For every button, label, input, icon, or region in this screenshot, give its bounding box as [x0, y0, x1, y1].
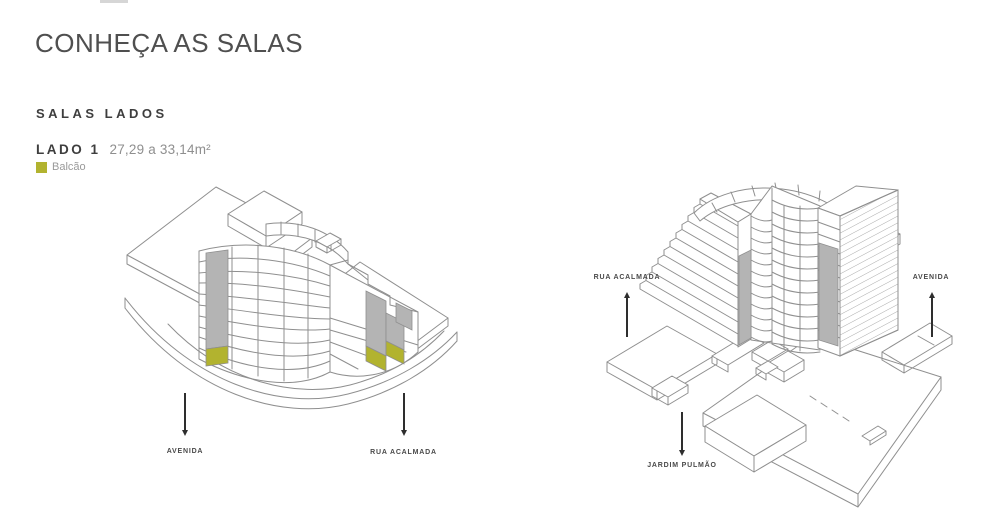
cropped-edge-artifact [100, 0, 128, 3]
street-label-avenida-left: AVENIDA [150, 448, 220, 455]
right-building-linework [607, 183, 952, 507]
unit-area-range: 27,29 a 33,14m² [110, 142, 211, 157]
left-building-linework [125, 187, 457, 409]
left-building-illustration [110, 172, 465, 424]
legend: Balcão [36, 161, 86, 173]
page: CONHEÇA AS SALAS SALAS LADOS LADO 127,29… [0, 0, 1000, 531]
jardim-pulmao-arrow-head [679, 450, 685, 456]
page-title: CONHEÇA AS SALAS [35, 28, 303, 59]
section-subtitle: SALAS LADOS [36, 106, 168, 121]
rua-acalmada-arrow-line-left [403, 393, 405, 430]
balcony-color-swatch [36, 162, 47, 173]
avenida-arrow-line [184, 393, 186, 430]
right-building-illustration [596, 176, 980, 508]
balcony-legend-label: Balcão [52, 161, 86, 173]
rua-acalmada-arrow-line-right [626, 298, 628, 337]
jardim-pulmao-arrow-line [681, 412, 683, 450]
avenida-arrow-head [182, 430, 188, 436]
street-label-rua-acalmada-left: RUA ACALMADA [357, 449, 450, 456]
unit-info-row: LADO 127,29 a 33,14m² [36, 142, 211, 157]
rua-acalmada-arrow-head-left [401, 430, 407, 436]
street-label-avenida-right: AVENIDA [896, 274, 966, 281]
unit-name: LADO 1 [36, 142, 101, 157]
street-label-rua-acalmada-right: RUA ACALMADA [581, 274, 673, 281]
avenida-arrow-line-right [931, 298, 933, 337]
street-label-jardim-pulmao: JARDIM PULMÃO [634, 462, 730, 469]
